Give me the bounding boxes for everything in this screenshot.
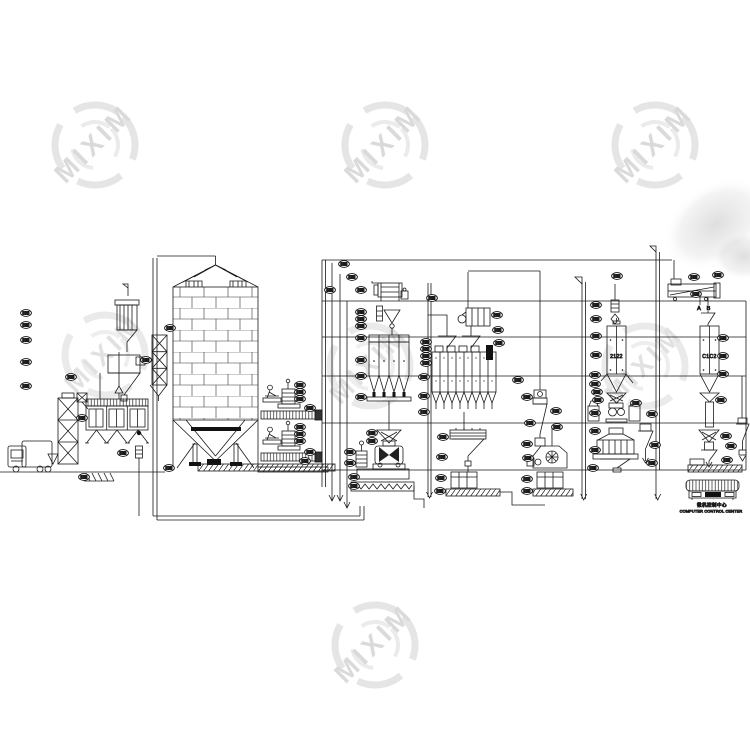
equipment-tag	[647, 460, 658, 467]
equipment-tag	[295, 382, 306, 389]
equipment-tag	[523, 455, 534, 462]
watermark-text: MIXIM	[48, 98, 139, 189]
twin-bin-right: C1C2	[700, 326, 719, 427]
equipment-tag	[421, 353, 432, 360]
equipment-tag	[722, 457, 733, 464]
watermark: MIXIM	[307, 303, 433, 429]
equipment-tag	[295, 389, 306, 396]
equipment-tag	[325, 287, 336, 294]
bucket-elevator-silo	[150, 335, 167, 401]
watermark: MIXIM	[582, 303, 708, 429]
equipment-tag	[21, 359, 32, 366]
outlet-a-label: A	[697, 306, 701, 312]
equipment-tag	[522, 394, 533, 401]
equipment-tag	[349, 483, 360, 490]
equipment-tag	[436, 475, 447, 482]
watermark-text: MIXIM	[328, 598, 419, 689]
equipment-tag	[356, 323, 367, 330]
equipment-tag	[305, 449, 316, 456]
equipment-tag	[493, 327, 504, 334]
equipment-tag	[718, 335, 729, 342]
pre-cleaner-station	[261, 421, 322, 462]
equipment-tag	[593, 397, 604, 404]
equipment-tag	[492, 312, 503, 319]
equipment-tag	[421, 346, 432, 353]
bucket-elevator-intake	[48, 393, 78, 464]
equipment-tag	[438, 434, 449, 441]
equipment-tag	[356, 287, 367, 294]
watermark-shadow	[646, 158, 750, 290]
conveyor-drive	[690, 459, 704, 465]
equipment-tag	[437, 454, 448, 461]
equipment-tag	[718, 371, 729, 378]
airlock-tank	[356, 441, 367, 467]
console-title-en: COMPUTER CONTROL CENTER	[680, 509, 743, 514]
equipment-tag	[21, 337, 32, 344]
equipment-tag	[591, 333, 602, 340]
truck	[8, 441, 52, 472]
equipment-tag	[367, 438, 378, 445]
equipment-tag	[339, 261, 350, 268]
equipment-tag	[525, 420, 536, 427]
equipment-tag	[345, 449, 356, 456]
equipment-tag	[164, 465, 175, 472]
equipment-tag	[21, 310, 32, 317]
equipment-tag	[726, 443, 737, 450]
equipment-tag	[590, 410, 601, 417]
flow-diagram-canvas: MIXIM MIXIM MIXIM MIXIM MIXIM MIXIM MIXI…	[0, 0, 750, 750]
belt-conveyor	[533, 489, 573, 496]
magnet-capsule	[611, 300, 619, 324]
equipment-tag	[356, 335, 367, 342]
watermark-text: MIXIM	[58, 308, 149, 399]
equipment-tag	[367, 430, 378, 437]
equipment-tag	[494, 340, 505, 347]
watermark: MIXIM	[322, 82, 448, 208]
equipment-tag	[427, 295, 438, 302]
equipment-tag	[591, 316, 602, 323]
ground-hatch	[258, 467, 328, 472]
equipment-tag	[295, 438, 306, 445]
belt-conveyor	[688, 465, 742, 472]
screw-conveyor	[351, 482, 414, 491]
equipment-tag	[349, 474, 360, 481]
equipment-tag	[590, 381, 601, 388]
drum-cleaner	[372, 281, 408, 301]
equipment-tag	[300, 458, 311, 465]
equipment-tag	[591, 352, 602, 359]
equipment-tag	[305, 405, 316, 412]
equipment-tag	[356, 394, 367, 401]
packer-box	[451, 472, 477, 488]
equipment-tag	[419, 393, 430, 400]
watermark: MIXIM	[32, 82, 158, 208]
equipment-tag	[592, 389, 603, 396]
watermark-text: MIXIM	[608, 98, 699, 189]
equipment-tag	[79, 474, 90, 481]
equipment-tag	[66, 374, 77, 381]
discharge-funnel	[699, 430, 719, 467]
bin-code-label: C1C2	[702, 354, 716, 360]
bin-code-label: 2122	[610, 354, 623, 360]
equipment-tag	[21, 322, 32, 329]
equipment-tag	[590, 428, 601, 435]
equipment-tag	[419, 409, 430, 416]
belt-conveyor	[446, 489, 500, 496]
equipment-tag	[347, 274, 358, 281]
magnet-capsule	[377, 306, 383, 321]
mini-cyclone	[736, 418, 749, 461]
equipment-tag	[713, 272, 724, 279]
equipment-tag	[590, 372, 601, 379]
equipment-tag	[356, 309, 367, 316]
equipment-tag	[295, 396, 306, 403]
equipment-tag	[21, 383, 32, 390]
pre-cleaner-station	[261, 379, 322, 420]
equipment-tag	[631, 400, 642, 407]
equipment-tag	[77, 415, 88, 422]
equipment-tag	[612, 273, 623, 280]
outlet-b-label: B	[707, 306, 711, 312]
equipment-tag	[718, 353, 729, 360]
line-fan	[534, 390, 546, 398]
hammer-mill	[373, 441, 405, 469]
destoner	[458, 272, 490, 326]
equipment-tag	[356, 316, 367, 323]
sifter-cone	[450, 428, 486, 472]
equipment-tag	[591, 302, 602, 309]
equipment-tag	[647, 411, 658, 418]
console-title-zh: 微机控制中心	[697, 502, 727, 509]
equipment-tag	[552, 424, 563, 431]
control-console	[686, 480, 739, 500]
watermark: MIXIM	[312, 582, 438, 708]
equipment-tag	[295, 431, 306, 438]
equipment-tag	[419, 374, 430, 381]
separator-funnel	[701, 311, 715, 326]
watermark-text: MIXIM	[338, 98, 429, 189]
equipment-tag	[588, 465, 599, 472]
equipment-tag	[522, 441, 533, 448]
equipment-tag	[295, 424, 306, 431]
equipment-tag	[421, 339, 432, 346]
equipment-tag	[689, 274, 700, 281]
equipment-tag	[118, 450, 129, 457]
equipment-tag	[356, 373, 367, 380]
equipment-tag	[590, 447, 601, 454]
equipment-tag	[522, 488, 533, 495]
equipment-tag	[356, 357, 367, 364]
equipment-tag	[421, 360, 432, 367]
crusher-base	[537, 472, 563, 488]
equipment-tag	[141, 357, 152, 364]
equipment-tag	[513, 377, 524, 384]
equipment-tag	[522, 476, 533, 483]
equipment-tag	[165, 325, 176, 332]
equipment-tag	[721, 433, 732, 440]
equipment-tag	[650, 442, 661, 449]
equipment-tag	[435, 488, 446, 495]
silo	[157, 256, 335, 471]
equipment-tag	[345, 460, 356, 467]
mill-pedestal	[357, 469, 409, 479]
equipment-tag	[551, 408, 562, 415]
equipment-tag	[691, 291, 702, 298]
hopper-battery-8	[432, 345, 496, 430]
equipment-tag	[716, 397, 727, 404]
